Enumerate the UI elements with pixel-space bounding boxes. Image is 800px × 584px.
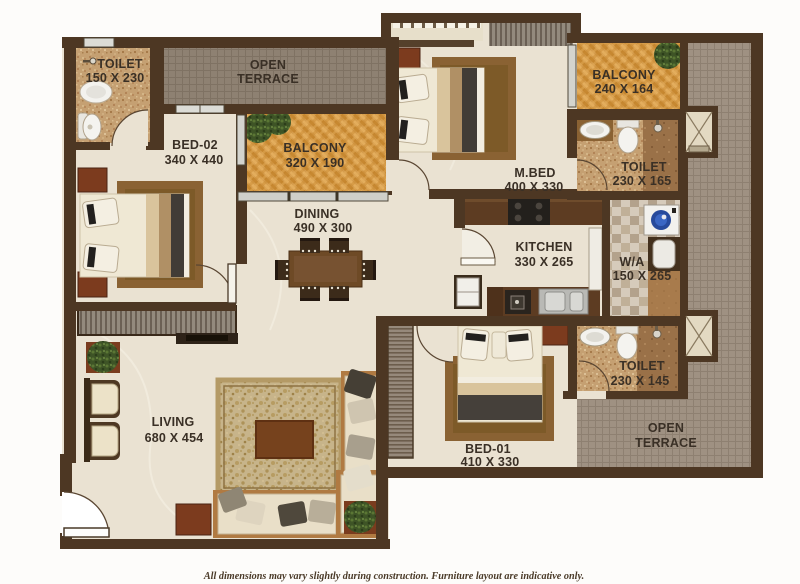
- svg-text:KITCHEN: KITCHEN: [516, 240, 573, 254]
- svg-text:BED-02: BED-02: [172, 138, 218, 152]
- svg-text:490 X 300: 490 X 300: [294, 221, 353, 235]
- svg-text:230 X 145: 230 X 145: [611, 374, 670, 388]
- svg-text:150 X 265: 150 X 265: [613, 269, 672, 283]
- svg-text:All dimensions may vary slight: All dimensions may vary slightly during …: [203, 571, 584, 582]
- svg-text:W/A: W/A: [620, 255, 645, 269]
- svg-text:OPEN: OPEN: [250, 58, 286, 72]
- svg-text:330 X 265: 330 X 265: [515, 255, 574, 269]
- svg-text:M.BED: M.BED: [514, 166, 555, 180]
- svg-text:TERRACE: TERRACE: [635, 436, 697, 450]
- svg-text:240 X 164: 240 X 164: [595, 82, 654, 96]
- svg-text:320 X 190: 320 X 190: [286, 156, 345, 170]
- svg-text:BED-01: BED-01: [465, 442, 511, 456]
- svg-text:TOILET: TOILET: [97, 57, 143, 71]
- svg-text:BALCONY: BALCONY: [283, 141, 347, 155]
- svg-text:150 X 230: 150 X 230: [86, 71, 145, 85]
- svg-text:680 X 454: 680 X 454: [145, 431, 204, 445]
- svg-text:410 X 330: 410 X 330: [461, 455, 520, 469]
- svg-text:DINING: DINING: [295, 207, 340, 221]
- svg-text:TOILET: TOILET: [621, 160, 667, 174]
- svg-text:230 X 165: 230 X 165: [613, 174, 672, 188]
- svg-text:OPEN: OPEN: [648, 421, 684, 435]
- svg-text:340 X 440: 340 X 440: [165, 153, 224, 167]
- svg-text:TERRACE: TERRACE: [237, 72, 299, 86]
- svg-text:400 X 330: 400 X 330: [505, 180, 564, 194]
- svg-text:BALCONY: BALCONY: [592, 68, 656, 82]
- svg-text:TOILET: TOILET: [619, 359, 665, 373]
- svg-text:LIVING: LIVING: [152, 415, 195, 429]
